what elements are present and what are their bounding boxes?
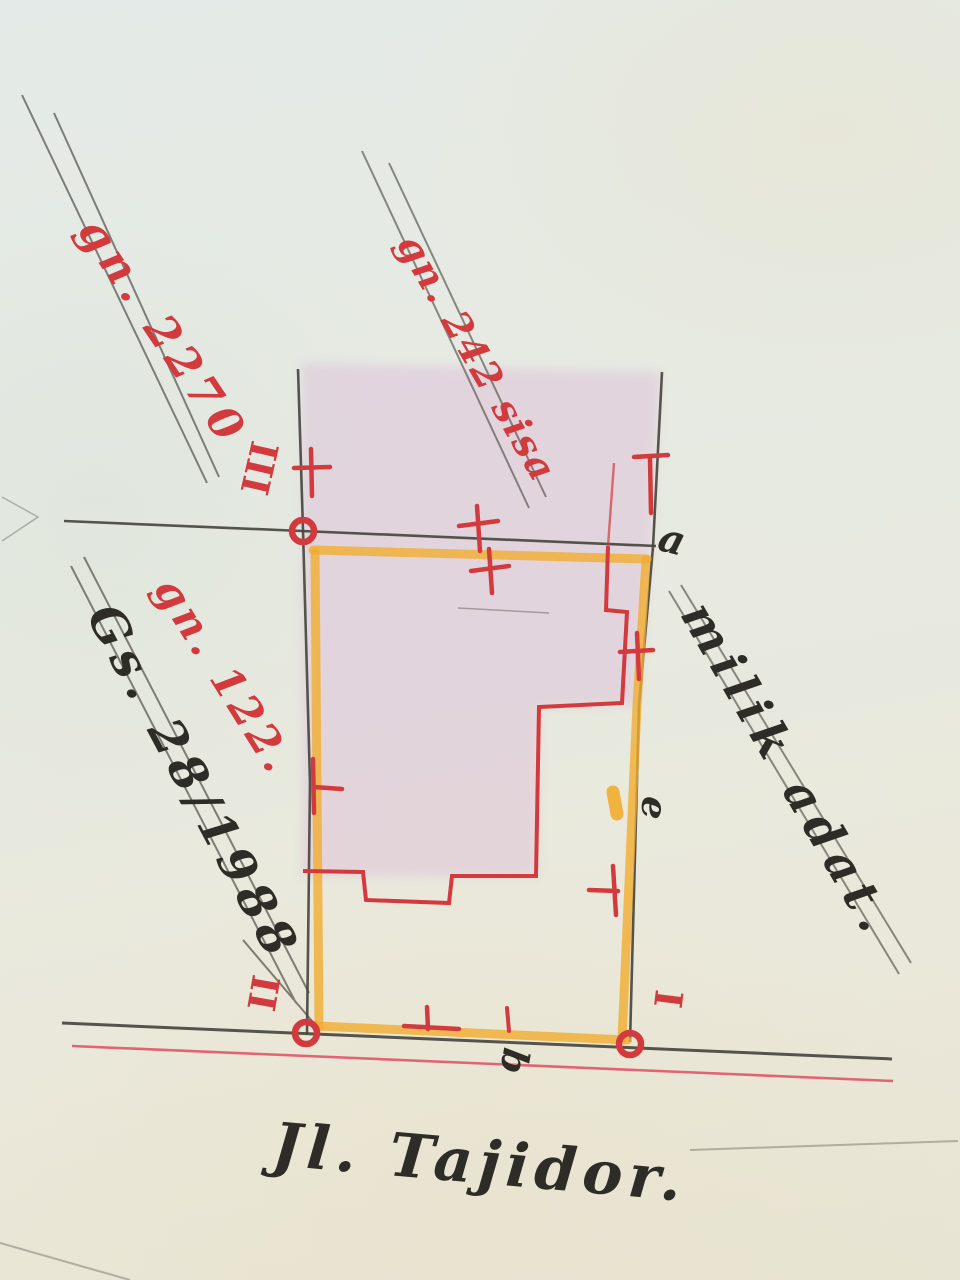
corner-numeral-II: II bbox=[241, 972, 285, 1014]
crease-mark-left bbox=[2, 497, 38, 541]
parcel-pink-wash bbox=[302, 363, 661, 877]
tick-mark-bottom-small bbox=[507, 1008, 509, 1031]
point-e-marker bbox=[613, 792, 617, 814]
cadastral-sketch-map: gn. 2270 gn. 242 sisa gn. 122. Gs. 28/19… bbox=[0, 0, 960, 1280]
street-red-line bbox=[72, 1046, 893, 1081]
parcel-highlight-bottom bbox=[317, 1026, 627, 1040]
point-label-e: e bbox=[635, 795, 673, 822]
corner-numeral-III: III bbox=[234, 438, 283, 499]
street-boundary-line bbox=[62, 1023, 892, 1059]
tick-mark-bottom bbox=[404, 1007, 459, 1029]
tick-mark-right-lower bbox=[589, 866, 618, 915]
